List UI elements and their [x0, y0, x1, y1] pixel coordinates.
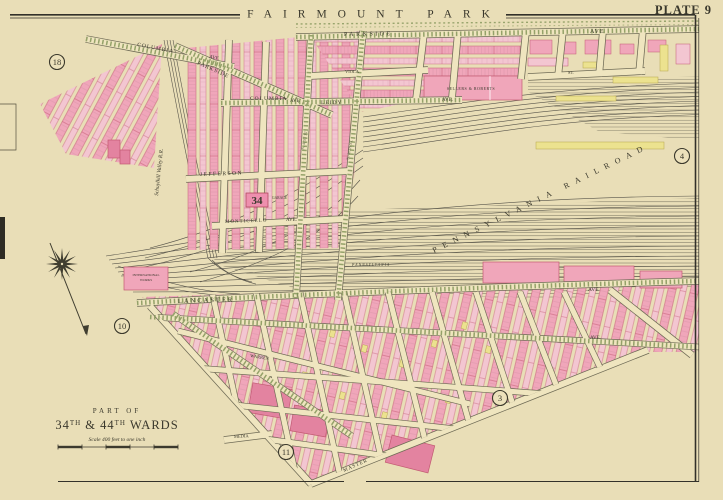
plate-ref-11: 11: [279, 445, 294, 460]
street-label-st-top-right: ST.: [568, 70, 574, 75]
title-scale-note: Scale 400 feet to one inch: [89, 436, 146, 443]
street-label-leidy: LEIDY: [321, 100, 343, 106]
street-label-parkside: PARKSIDE: [344, 31, 393, 38]
plate-ref-18: 18: [50, 55, 65, 70]
plate-ref-4: 4: [675, 149, 690, 164]
ward-badge: 34: [246, 193, 268, 207]
works-label-line1: INTERNATIONAL: [132, 273, 159, 277]
binding-mark: [0, 217, 5, 259]
street-label-viola: VIOLA: [345, 69, 360, 74]
fairmount-park-title: FAIRMOUNT PARK: [247, 9, 501, 21]
street-label-media: MEDIA: [234, 433, 250, 439]
plate-ref-3-number: 3: [498, 393, 502, 403]
plate-ref-11-number: 11: [282, 447, 290, 457]
plate-number: PLATE 9: [655, 3, 712, 17]
title-wards-end: WARDS: [126, 418, 179, 432]
street-label-columbia-mid: COLUMBIA: [250, 96, 287, 102]
atlas-page: PARKSIDE AVE COLUMBIA AVE PARKSIDE COLUM…: [0, 0, 723, 500]
works-label-line2: WORKS: [140, 278, 152, 282]
street-label-westminster-ave: AVE.: [590, 336, 601, 341]
street-label-monticello-ave: AVE.: [286, 218, 297, 223]
factory-label: SELLERS & ROBERTS: [447, 86, 495, 91]
plate-ref-10-number: 10: [118, 321, 127, 331]
title-wards-sup2: TH: [115, 419, 126, 427]
street-label-columbia-mid-ave: AVE: [290, 99, 300, 104]
street-label-leidy-ave: AVE.: [442, 98, 453, 103]
title-wards-mid: & 44: [81, 418, 114, 432]
street-label-parkside-ave: AVE: [590, 29, 605, 35]
title-wards-num1: 34: [55, 418, 70, 432]
title-wards-sup1: TH: [70, 419, 81, 427]
penna-line-label: PENNSYLVANIA: [351, 263, 390, 267]
plate-ref-3: 3: [493, 391, 508, 406]
ward-badge-number: 34: [252, 195, 264, 207]
title-part-of: PART OF: [93, 407, 141, 415]
plate-ref-18-number: 18: [53, 57, 62, 67]
atlas-map: PARKSIDE AVE COLUMBIA AVE PARKSIDE COLUM…: [0, 0, 723, 500]
plate-ref-10: 10: [115, 319, 130, 334]
street-label-lancaster-ave: AVE: [588, 287, 599, 293]
street-label-lancaster: LANCASTER: [178, 297, 234, 305]
garage-label: GARAGE: [272, 196, 288, 200]
